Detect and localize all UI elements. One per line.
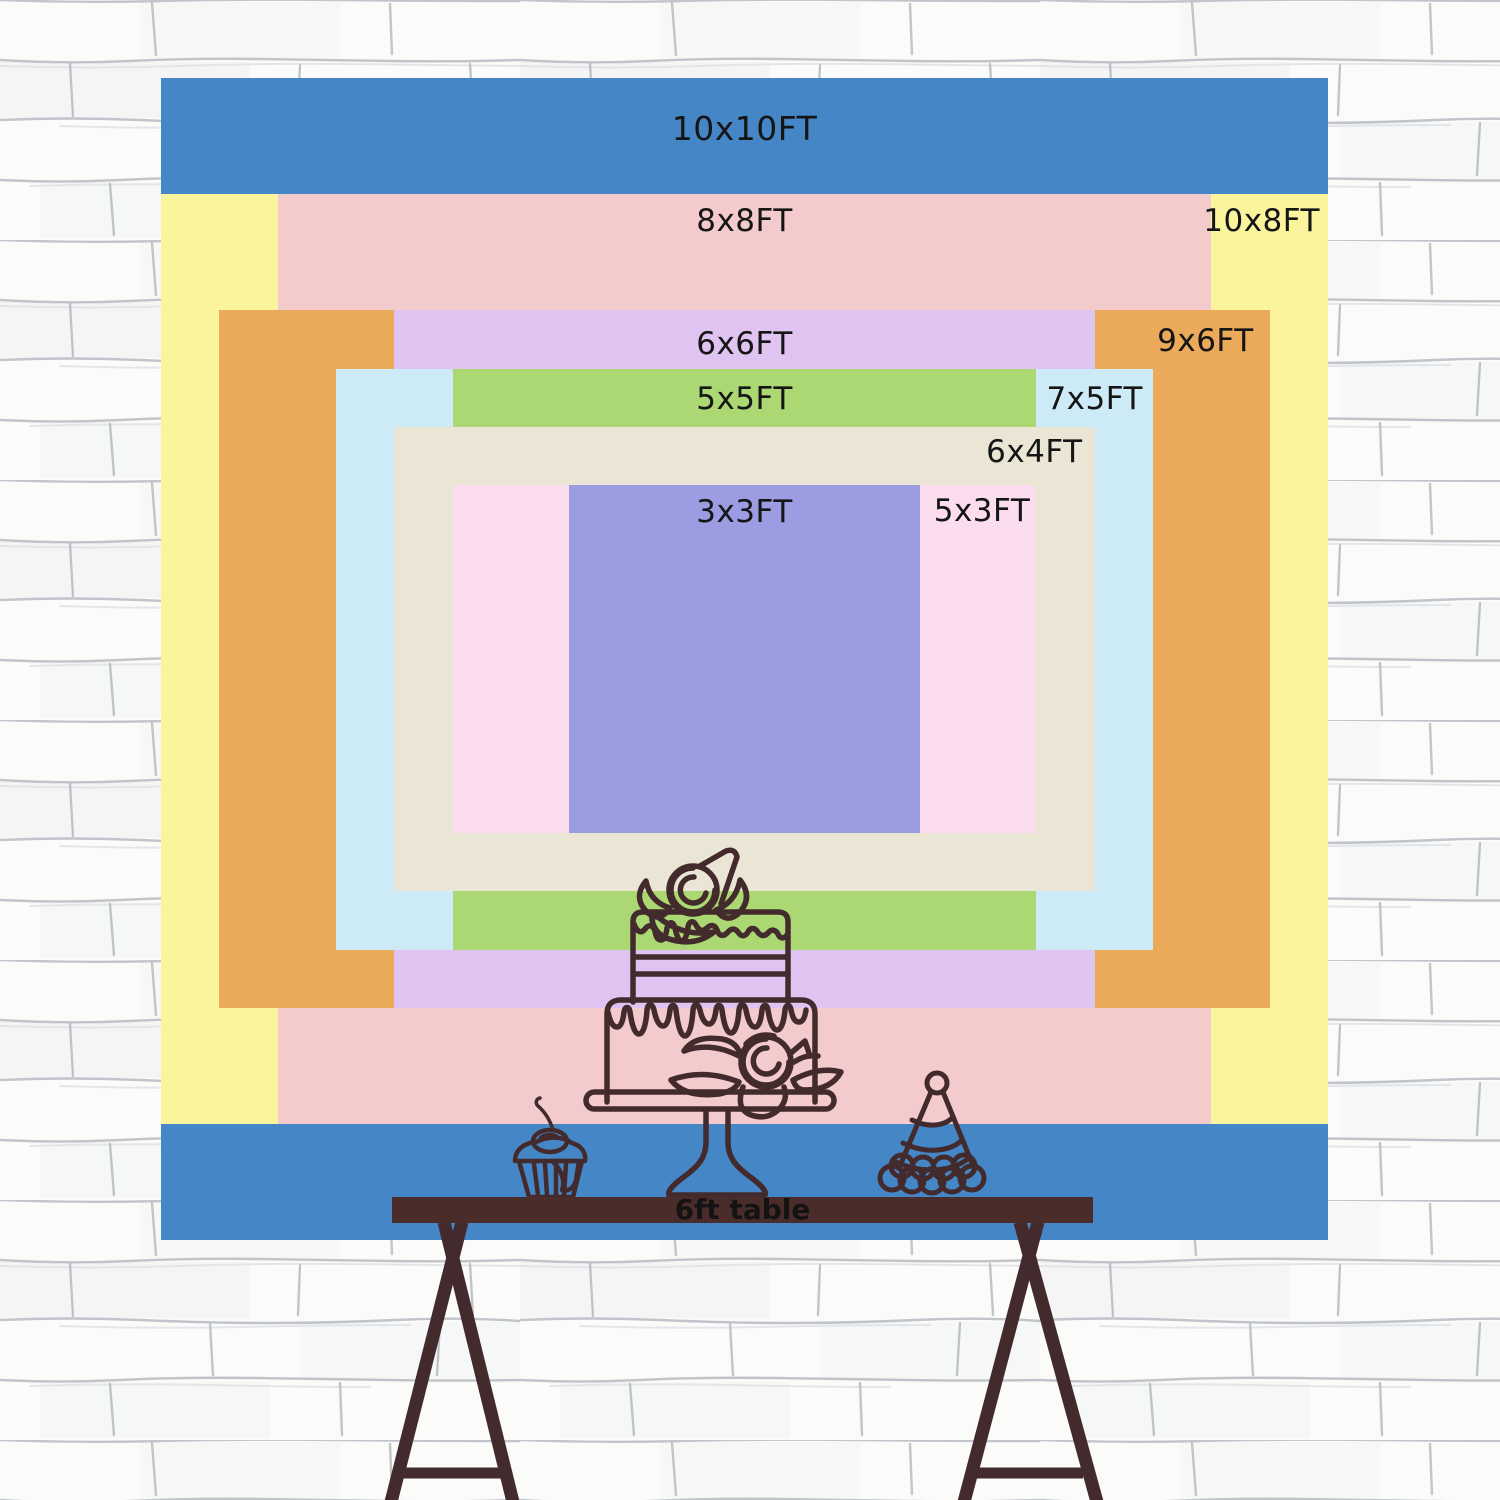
table-label: 6ft table xyxy=(675,1197,811,1223)
size-label-5x3: 5x3FT xyxy=(934,493,1031,530)
size-label-5x5: 5x5FT xyxy=(696,381,793,418)
size-rect-3x3 xyxy=(569,485,919,834)
size-label-8x8: 8x8FT xyxy=(696,203,793,240)
size-label-9x6: 9x6FT xyxy=(1157,323,1254,360)
backdrop-size-chart: 10x10FT10x8FT8x8FT9x6FT6x6FT7x5FT5x5FT6x… xyxy=(0,0,1500,1500)
size-label-7x5: 7x5FT xyxy=(1046,381,1143,418)
size-label-10x10: 10x10FT xyxy=(672,110,818,149)
size-label-10x8: 10x8FT xyxy=(1203,203,1320,240)
size-label-3x3: 3x3FT xyxy=(696,494,793,531)
size-label-6x6: 6x6FT xyxy=(696,326,793,363)
size-label-6x4: 6x4FT xyxy=(986,434,1083,471)
table-top: 6ft table xyxy=(392,1197,1093,1223)
backdrop-stack: 10x10FT10x8FT8x8FT9x6FT6x6FT7x5FT5x5FT6x… xyxy=(0,0,1500,1500)
